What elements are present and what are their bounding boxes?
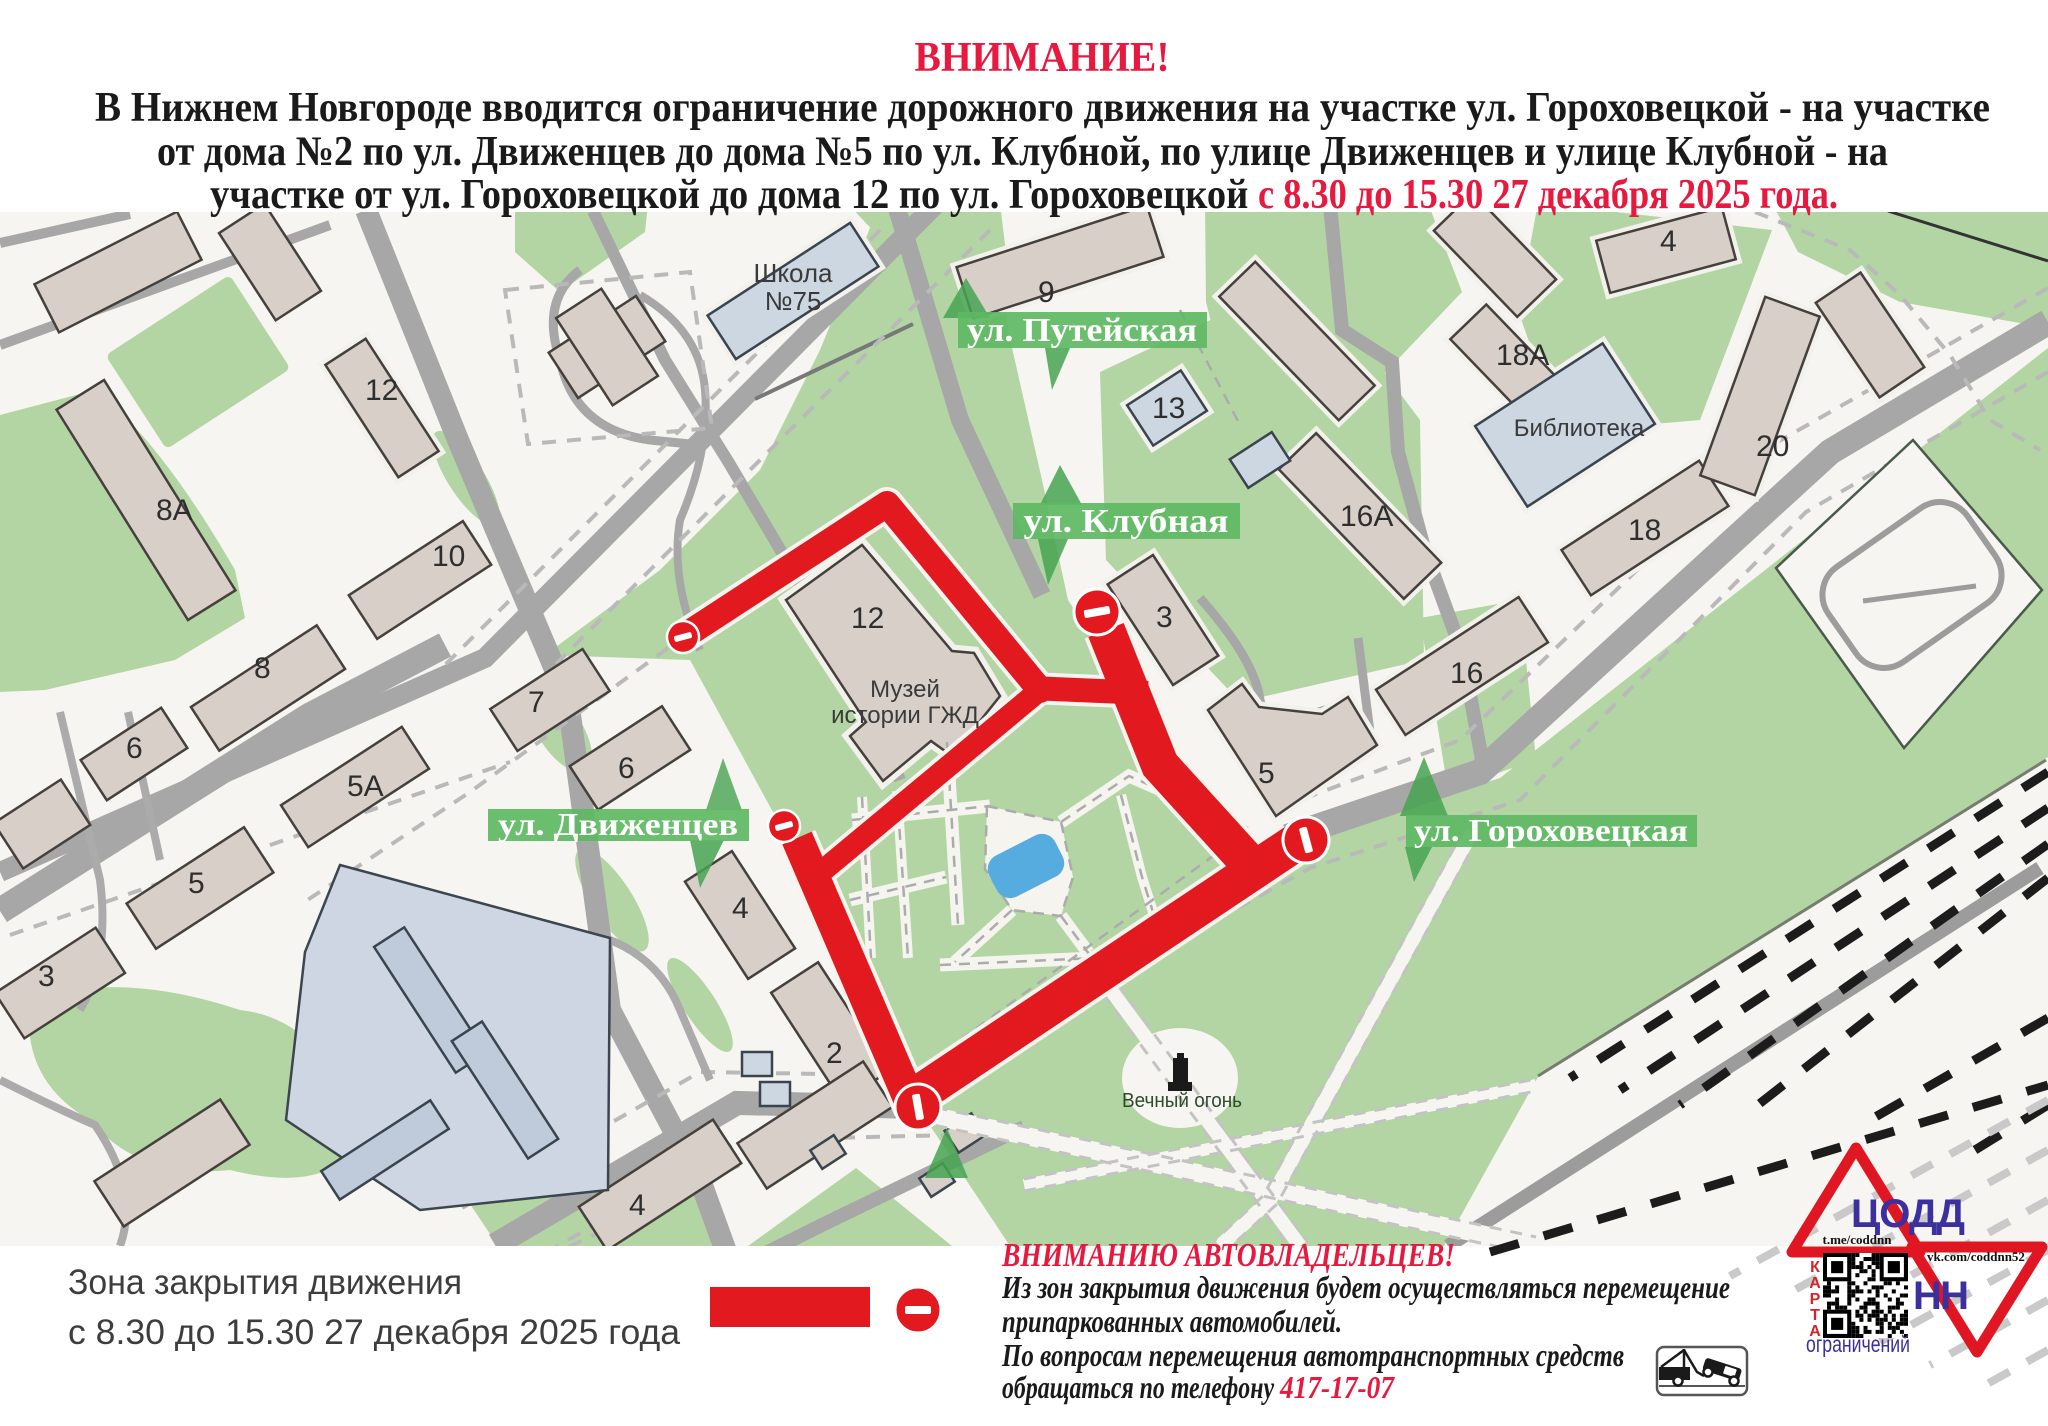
svg-text:12: 12 [365,374,398,407]
svg-text:t.me/coddnn: t.me/coddnn [1823,1232,1893,1247]
svg-text:7: 7 [528,686,545,719]
svg-text:А: А [1809,1275,1821,1292]
svg-text:Зона закрытия движения: Зона закрытия движения [68,1263,462,1302]
svg-text:обращаться по телефону 417-17-: обращаться по телефону 417-17-07 [1002,1369,1396,1405]
svg-text:В Нижнем Новгороде вводится ог: В Нижнем Новгороде вводится ограничение … [95,85,1990,131]
svg-text:ул. Клубная: ул. Клубная [1024,503,1229,540]
svg-text:истории ГЖД: истории ГЖД [831,702,979,729]
svg-text:vk.com/coddnn52: vk.com/coddnn52 [1927,1249,2025,1264]
svg-text:3: 3 [38,960,55,993]
svg-text:К: К [1810,1259,1820,1276]
svg-text:3: 3 [1156,601,1173,634]
svg-text:4: 4 [732,892,749,925]
svg-text:5А: 5А [347,770,384,803]
svg-text:ограничений: ограничений [1806,1331,1910,1357]
svg-text:ул. Движенцев: ул. Движенцев [498,806,738,842]
svg-text:18: 18 [1628,514,1661,547]
svg-text:6: 6 [618,752,635,785]
svg-text:18А: 18А [1496,339,1549,372]
svg-text:ул. Гороховецкая: ул. Гороховецкая [1414,812,1688,848]
svg-text:20: 20 [1756,430,1789,463]
svg-text:6: 6 [126,732,143,765]
svg-text:Библиотека: Библиотека [1514,415,1645,442]
svg-text:Музей: Музей [870,676,940,703]
svg-text:ВНИМАНИЕ!: ВНИМАНИЕ! [915,35,1170,81]
svg-text:ЦОДД: ЦОДД [1851,1192,1965,1236]
svg-text:ул. Путейская: ул. Путейская [967,312,1197,349]
svg-text:от дома №2 по ул. Движенцев до: от дома №2 по ул. Движенцев до дома №5 п… [157,129,1888,175]
svg-text:Вечный огонь: Вечный огонь [1122,1090,1242,1112]
svg-text:По вопросам перемещения автотр: По вопросам перемещения автотранспортных… [1001,1337,1624,1373]
svg-text:2: 2 [826,1037,843,1070]
svg-text:8А: 8А [156,494,193,527]
svg-text:припаркованных автомобилей.: припаркованных автомобилей. [1002,1303,1342,1339]
svg-text:4: 4 [1660,225,1677,258]
svg-text:16: 16 [1450,657,1483,690]
svg-text:№75: №75 [765,286,822,316]
svg-text:5: 5 [1258,757,1275,790]
svg-text:Школа: Школа [753,258,833,288]
svg-text:13: 13 [1152,392,1185,425]
svg-text:участке от ул. Гороховецкой до: участке от ул. Гороховецкой до дома 12 п… [210,172,1838,218]
svg-text:Т: Т [1810,1307,1820,1324]
svg-text:с 8.30 до 15.30 27 декабря 202: с 8.30 до 15.30 27 декабря 2025 года [68,1313,681,1352]
svg-text:4: 4 [629,1189,646,1222]
svg-text:Из зон закрытия движения будет: Из зон закрытия движения будет осуществл… [1001,1269,1730,1305]
svg-text:12: 12 [851,602,884,635]
svg-text:Р: Р [1810,1291,1821,1308]
svg-text:НН: НН [1913,1274,1969,1318]
svg-text:5: 5 [188,867,205,900]
svg-text:10: 10 [432,540,465,573]
svg-text:8: 8 [254,652,271,685]
svg-text:9: 9 [1038,276,1055,309]
svg-text:16А: 16А [1340,500,1393,533]
